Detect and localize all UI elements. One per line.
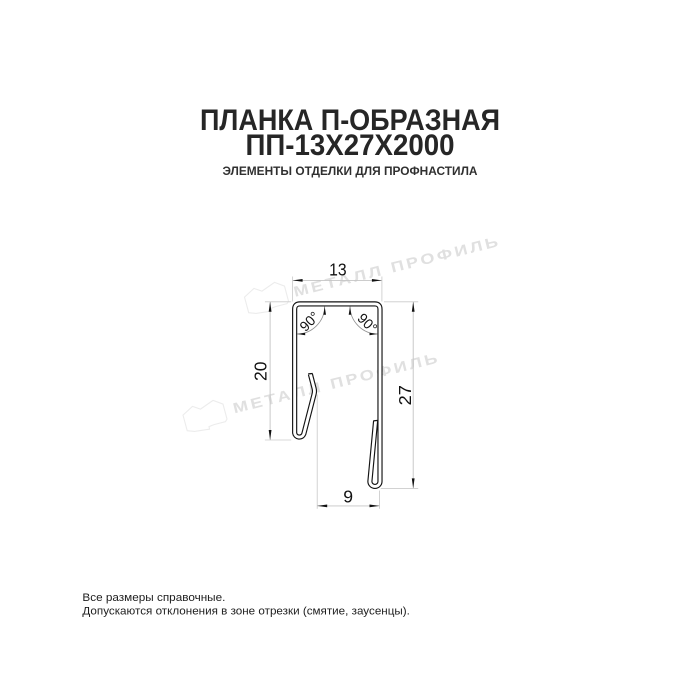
svg-text:Допускаются отклонения в зоне: Допускаются отклонения в зоне отрезки (с… — [82, 606, 410, 618]
svg-text:ЭЛЕМЕНТЫ ОТДЕЛКИ ДЛЯ ПРОФНАСТИ: ЭЛЕМЕНТЫ ОТДЕЛКИ ДЛЯ ПРОФНАСТИЛА — [223, 166, 478, 178]
svg-text:13: 13 — [329, 259, 347, 279]
svg-text:27: 27 — [395, 385, 415, 405]
svg-text:9: 9 — [343, 487, 353, 507]
svg-text:ПП-13Х27Х2000: ПП-13Х27Х2000 — [246, 129, 455, 162]
svg-text:20: 20 — [250, 361, 270, 381]
svg-text:Все размеры справочные.: Все размеры справочные. — [82, 592, 225, 604]
